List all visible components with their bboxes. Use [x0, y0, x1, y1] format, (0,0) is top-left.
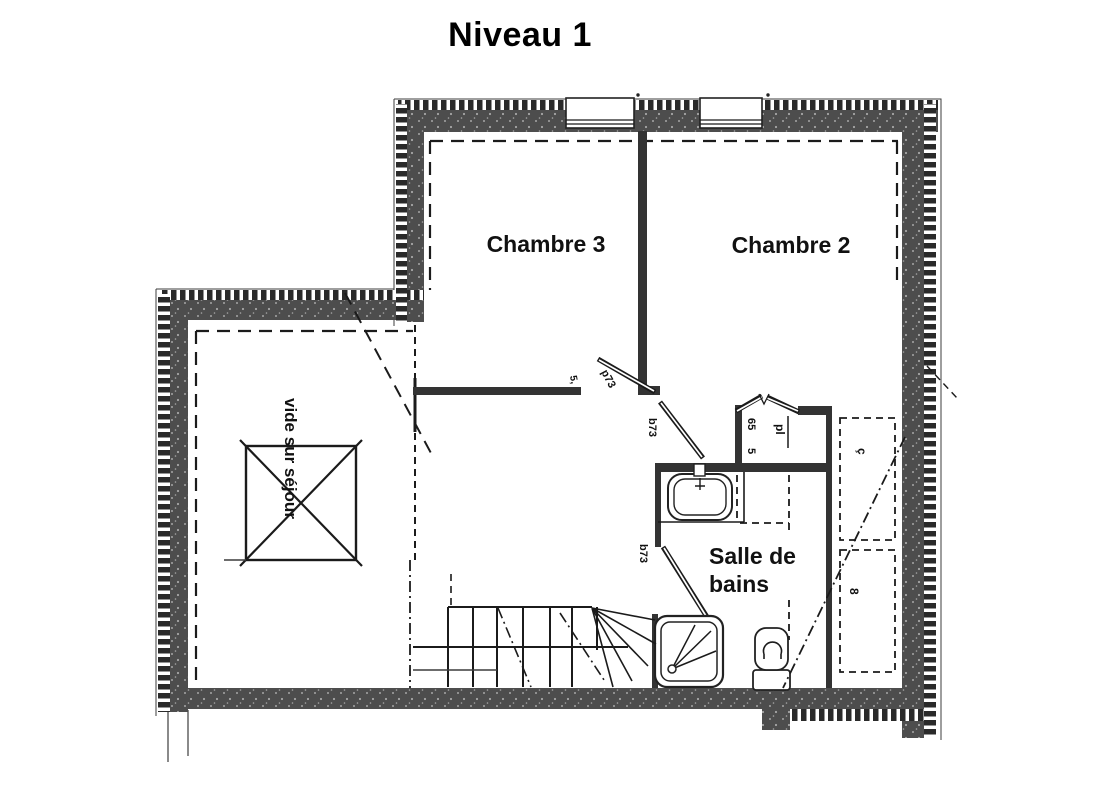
toilet	[753, 628, 790, 690]
door-chambre2	[660, 402, 703, 458]
room-label-salle-de-bains-line1: Salle de	[709, 543, 796, 569]
exterior-walls	[158, 100, 938, 738]
outer-outline	[156, 93, 941, 762]
closet-label-bottom: 8	[847, 588, 861, 595]
placard-dim-5: 5	[745, 448, 757, 454]
floor-plan-page: Niveau 1	[0, 0, 1096, 794]
placard-dim-65: 65	[745, 418, 757, 430]
door-bathroom	[663, 547, 707, 617]
placard-label: pl	[773, 424, 787, 435]
folding-door-placard	[736, 394, 799, 412]
door-label-bathroom: b73	[637, 544, 649, 563]
door-label-b73: b73	[646, 418, 658, 437]
washbasin	[658, 464, 744, 522]
interior-walls	[413, 131, 832, 688]
window-chambre3	[566, 98, 634, 128]
shower	[655, 616, 723, 687]
room-label-chambre3: Chambre 3	[487, 231, 606, 257]
window-chambre2	[700, 98, 762, 128]
dim-label-5: 5,	[567, 375, 579, 385]
staircase	[410, 560, 656, 688]
closet-label-top: ç	[855, 448, 869, 455]
room-label-vide-sur-sejour: vide sur séjour	[281, 398, 300, 519]
under-eave-storage	[783, 418, 905, 688]
insulation-dashed-lines	[196, 141, 898, 684]
room-label-salle-de-bains-line2: bains	[709, 571, 769, 597]
floor-plan-drawing: Chambre 3 Chambre 2 Salle de bains vide …	[0, 0, 1096, 794]
room-label-chambre2: Chambre 2	[732, 232, 851, 258]
